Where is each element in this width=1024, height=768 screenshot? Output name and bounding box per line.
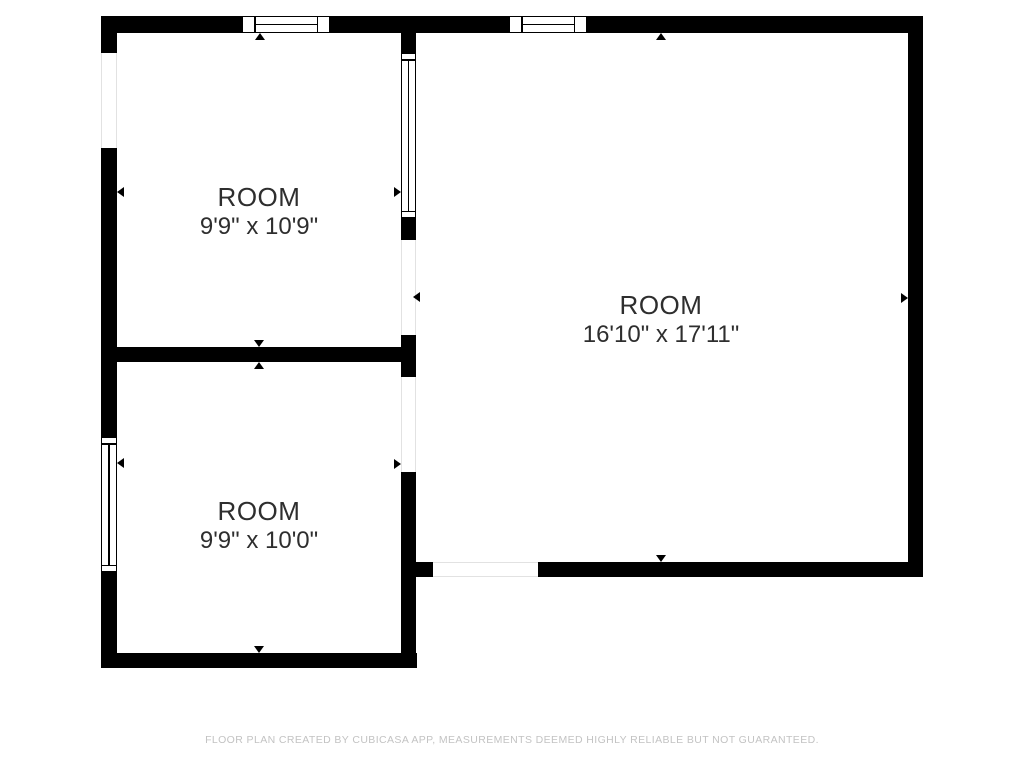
wall-segment — [330, 16, 509, 33]
room-name: ROOM — [200, 496, 318, 526]
window-pane-line — [408, 60, 410, 211]
wall-segment — [538, 562, 923, 577]
wall-segment — [101, 347, 401, 362]
room-label-right: ROOM 16'10" x 17'11" — [583, 290, 740, 350]
wall-opening — [401, 240, 416, 335]
window-pane-line — [522, 24, 574, 26]
room-name: ROOM — [200, 182, 318, 212]
direction-marker — [394, 459, 401, 469]
window-pane-line — [255, 24, 317, 26]
window — [242, 16, 330, 33]
room-name: ROOM — [583, 290, 740, 320]
floor-plan-canvas: ROOM 9'9" x 10'9" ROOM 9'9" x 10'0" ROOM… — [0, 0, 1024, 768]
room-dimensions: 9'9" x 10'9" — [200, 212, 318, 242]
direction-marker — [117, 187, 124, 197]
wall-segment — [401, 335, 416, 377]
wall-segment — [101, 33, 117, 53]
wall-segment — [587, 16, 923, 33]
wall-segment — [401, 472, 416, 668]
direction-marker — [117, 458, 124, 468]
direction-marker — [254, 646, 264, 653]
wall-segment — [416, 562, 433, 577]
direction-marker — [901, 293, 908, 303]
wall-segment — [908, 16, 923, 577]
window-pane-line — [108, 444, 110, 565]
room-dimensions: 16'10" x 17'11" — [583, 320, 740, 350]
direction-marker — [656, 33, 666, 40]
window — [101, 437, 117, 572]
wall-opening — [433, 562, 538, 577]
wall-segment — [401, 33, 416, 53]
room-dimensions: 9'9" x 10'0" — [200, 526, 318, 556]
direction-marker — [394, 187, 401, 197]
wall-segment — [401, 218, 416, 240]
direction-marker — [254, 362, 264, 369]
room-label-top-left: ROOM 9'9" x 10'9" — [200, 182, 318, 242]
wall-segment — [101, 148, 117, 437]
direction-marker — [255, 33, 265, 40]
wall-opening — [401, 377, 416, 472]
wall-opening — [101, 53, 117, 148]
wall-segment — [101, 653, 417, 668]
window — [509, 16, 587, 33]
direction-marker — [254, 340, 264, 347]
window — [401, 53, 416, 218]
disclaimer-text: FLOOR PLAN CREATED BY CUBICASA APP, MEAS… — [0, 734, 1024, 746]
room-label-bottom-left: ROOM 9'9" x 10'0" — [200, 496, 318, 556]
direction-marker — [413, 292, 420, 302]
direction-marker — [656, 555, 666, 562]
wall-segment — [101, 16, 242, 33]
